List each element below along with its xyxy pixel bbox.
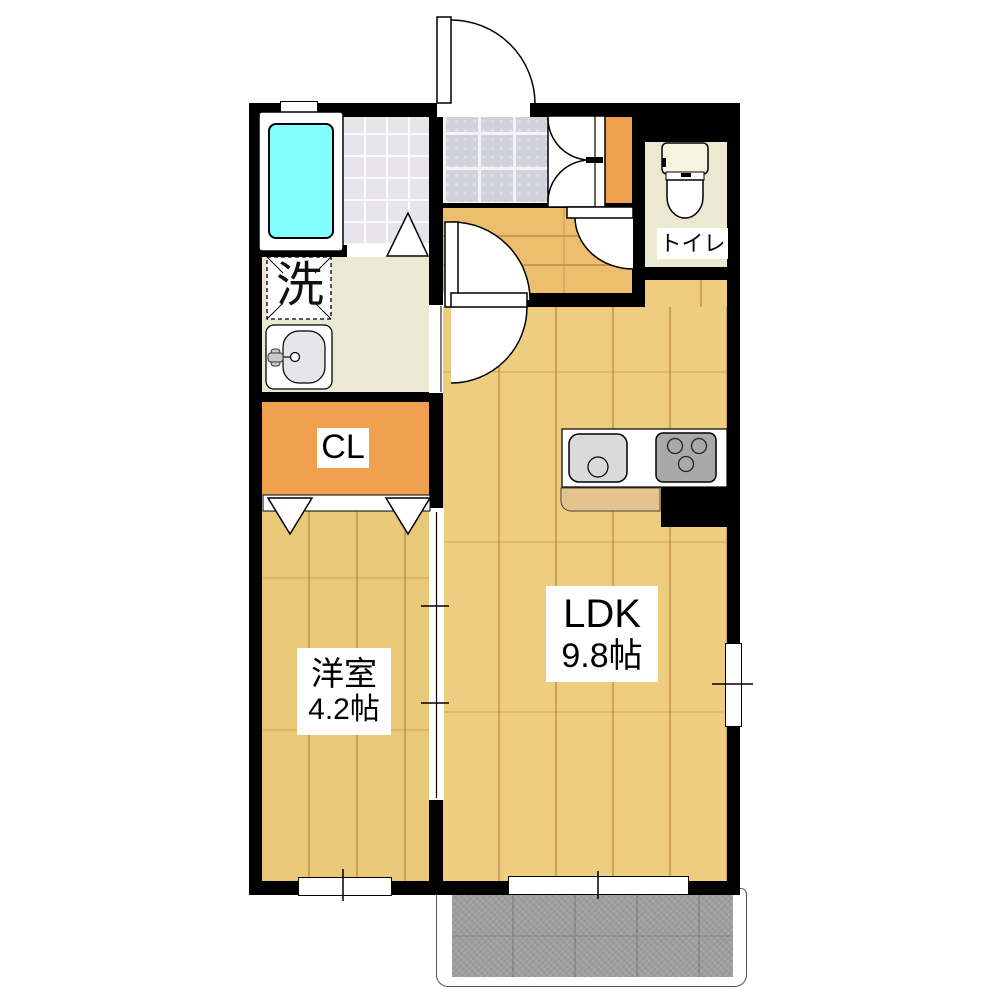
- toilet-label: トイレ: [657, 228, 728, 259]
- entrance-door: [437, 17, 535, 103]
- entrance-closet-doors: [548, 116, 605, 207]
- toilet-fixture: [662, 143, 708, 218]
- laundry-label: 洗: [272, 262, 328, 314]
- closet-folding-doors: [263, 495, 430, 534]
- laundry-name: 洗: [276, 259, 324, 312]
- floor-plan: LDK 9.8帖 洋室 4.2帖 CL トイレ 洗: [0, 0, 1000, 1000]
- kitchen-sink: [569, 434, 627, 482]
- stove: [656, 433, 716, 482]
- western-room-name: 洋室: [297, 655, 391, 693]
- ldk-label: LDK 9.8帖: [546, 586, 658, 682]
- ldk-name: LDK: [546, 591, 658, 637]
- closet-label: CL: [317, 428, 369, 468]
- toilet-door: [567, 207, 633, 269]
- toilet-name: トイレ: [657, 231, 728, 256]
- ldk-area: 9.8帖: [546, 637, 658, 676]
- closet-name: CL: [317, 428, 369, 467]
- counter-front: [561, 488, 660, 511]
- western-room-label: 洋室 4.2帖: [297, 648, 391, 735]
- western-room-area: 4.2帖: [297, 693, 391, 728]
- bathroom-folding-door: [387, 213, 428, 256]
- kitchen-counter: [561, 429, 727, 511]
- fixtures-overlay: [0, 0, 1000, 1000]
- bathroom-sink: [266, 325, 332, 389]
- bathtub: [259, 112, 343, 251]
- ldk-door: [451, 293, 527, 383]
